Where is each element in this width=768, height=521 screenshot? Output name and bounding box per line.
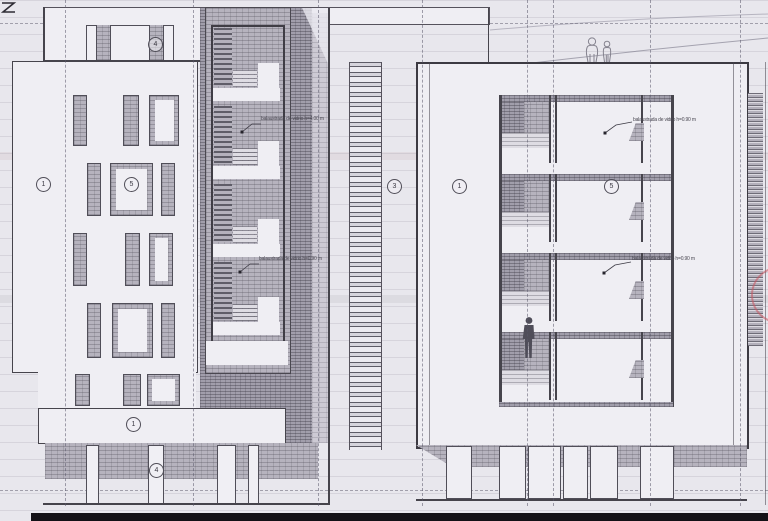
- grid-marker-4: 4: [149, 463, 164, 478]
- louver-panel: [500, 133, 549, 148]
- center-louver-stack: [349, 62, 382, 450]
- louver-panel: [500, 212, 549, 227]
- framed-window: [149, 233, 173, 286]
- masonry-mass-light: [312, 13, 328, 443]
- attic-window: [110, 25, 150, 61]
- tower-vent: [233, 304, 257, 321]
- louver-panel: [500, 370, 549, 385]
- grid-cell: [499, 260, 524, 291]
- tower-louver: [214, 262, 232, 320]
- leader-line: [238, 118, 262, 136]
- lintel-bar: [499, 95, 673, 102]
- tower-base-band: [206, 341, 288, 365]
- tower-floor-band: [213, 166, 280, 179]
- grid-marker-3: 3: [387, 179, 402, 194]
- grid-marker-1: 1: [126, 417, 141, 432]
- window: [161, 163, 175, 216]
- attic-window: [163, 25, 174, 61]
- window: [123, 95, 139, 146]
- grid-marker-1: 1: [452, 179, 467, 194]
- tower-vent: [233, 148, 257, 165]
- scan-black-bar: [31, 513, 768, 521]
- gridline-vertical: [650, 0, 651, 506]
- gridline-vertical: [553, 0, 554, 506]
- ground-line-left: [43, 503, 330, 505]
- leader-line: [600, 258, 632, 276]
- leader-line: [601, 118, 633, 136]
- annotation-balustrade: balaustrada de vidrio h=0.90 m: [259, 256, 322, 262]
- louver-panel: [500, 291, 549, 306]
- framed-window: [149, 95, 179, 146]
- grid-cell: [499, 181, 524, 212]
- ground-frame: [528, 446, 561, 499]
- grid-edge: [499, 95, 502, 407]
- person-icon: [520, 316, 538, 360]
- gridline-vertical: [527, 0, 528, 506]
- gridline-vertical: [422, 0, 423, 506]
- ground-frame: [499, 446, 526, 499]
- tower-window: [258, 141, 279, 166]
- grid-marker-5: 5: [124, 177, 139, 192]
- mullion: [555, 253, 557, 321]
- gridline-vertical: [193, 0, 194, 506]
- mullion: [555, 332, 557, 400]
- grid-edge: [671, 95, 674, 407]
- attic-pier: [96, 25, 110, 60]
- grid-cell: [499, 102, 524, 133]
- gridline-vertical: [65, 0, 66, 506]
- window: [123, 374, 141, 406]
- window: [87, 163, 101, 216]
- grid-marker-4: 4: [148, 37, 163, 52]
- tower-vent: [233, 226, 257, 243]
- people-icons: [583, 36, 623, 63]
- ground-opening: [217, 445, 236, 504]
- grid-sill-bar: [499, 402, 673, 407]
- window: [161, 303, 175, 358]
- tower-window: [258, 219, 279, 244]
- floor-band: [38, 408, 286, 444]
- tower-louver: [214, 184, 232, 242]
- ground-frame: [446, 446, 472, 499]
- window: [87, 303, 101, 358]
- grid-marker-1: 1: [36, 177, 51, 192]
- annotation-balustrade: balaustrada de vidrio h=0.90 m: [632, 256, 695, 262]
- ground-frame: [563, 446, 588, 499]
- grid-marker-5: 5: [604, 179, 619, 194]
- window: [73, 233, 87, 286]
- ground-line-right: [416, 499, 747, 501]
- tower-window: [258, 63, 279, 88]
- lintel-bar: [499, 174, 673, 181]
- window: [125, 233, 140, 286]
- annotation-balustrade: balaustrada de vidrio h=0.90 m: [633, 117, 696, 123]
- inner-wall-line: [429, 62, 430, 445]
- ground-opening: [248, 445, 259, 504]
- framed-window: [112, 303, 153, 358]
- tower-window: [258, 297, 279, 322]
- left-wall-line: [43, 7, 45, 61]
- mullion: [549, 253, 551, 321]
- mullion: [549, 95, 551, 163]
- attic-window: [86, 25, 97, 61]
- tower-louver: [214, 28, 232, 86]
- tower-floor-band: [213, 88, 280, 101]
- elevation-right-edge: [328, 8, 330, 505]
- ground-frame: [640, 446, 674, 499]
- corner-z-mark: [1, 1, 17, 16]
- annotation-balustrade: balaustrada de vidrio h=4.00 m: [261, 116, 324, 122]
- inner-wall-line: [733, 62, 734, 445]
- tower-louver: [214, 106, 232, 164]
- mullion: [549, 332, 551, 400]
- gridline-vertical: [318, 0, 319, 506]
- tower-floor-band: [213, 322, 280, 335]
- ground-frame: [590, 446, 618, 499]
- gridline-vertical: [740, 0, 741, 506]
- framed-window: [147, 374, 180, 406]
- ground-opening: [86, 445, 99, 504]
- window: [73, 95, 87, 146]
- mullion: [549, 174, 551, 242]
- architectural-sheet: 1 5 4 1 4 balaustrada de vidrio h=4.00 m…: [0, 0, 768, 521]
- window: [75, 374, 90, 406]
- tower-vent: [233, 70, 257, 87]
- mullion: [555, 174, 557, 242]
- mullion: [555, 95, 557, 163]
- leader-line: [236, 258, 260, 276]
